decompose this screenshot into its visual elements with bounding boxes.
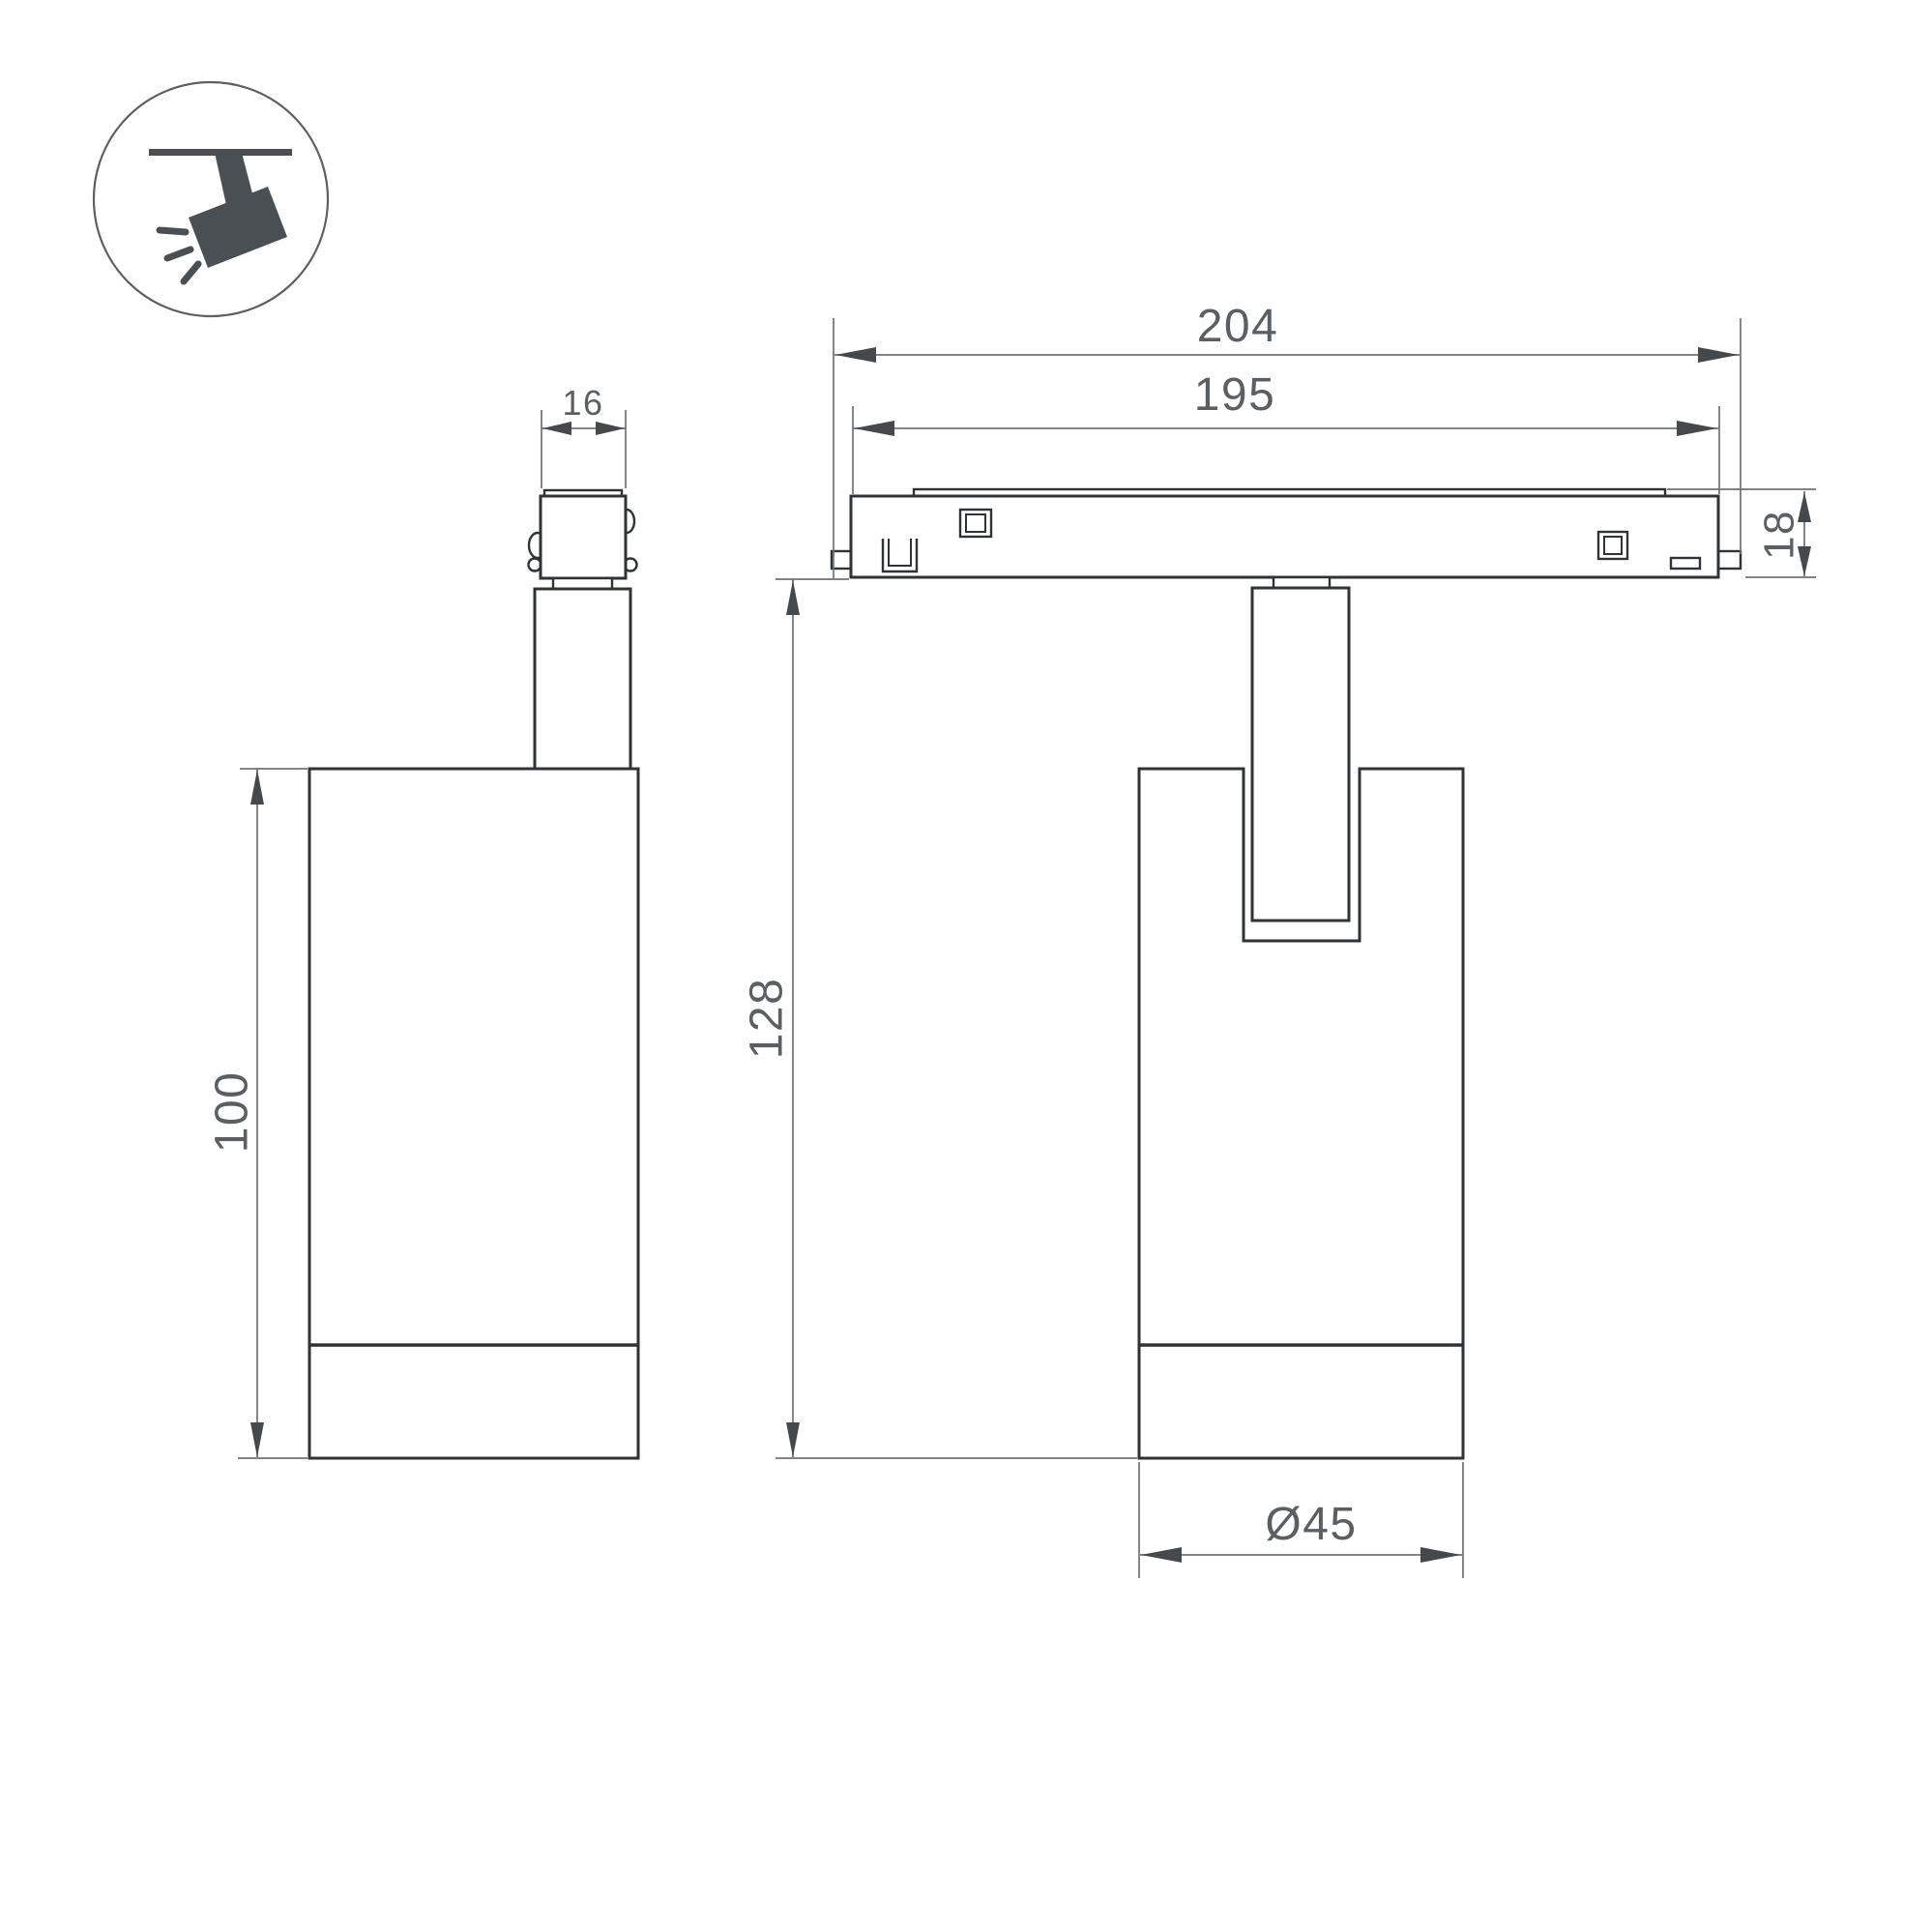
dim-housing-length: 195 xyxy=(853,369,1719,494)
arrowhead xyxy=(786,580,800,615)
arrowhead xyxy=(1141,1547,1182,1563)
dim-label-204: 204 xyxy=(1197,301,1279,352)
track-adapter xyxy=(541,496,626,578)
arrowhead xyxy=(542,422,571,435)
dim-body-height: 100 xyxy=(207,769,307,1458)
dim-drop-height: 128 xyxy=(742,579,1137,1458)
front-view: 204 195 18 128 xyxy=(742,301,1816,1578)
icon-circle xyxy=(94,82,328,316)
arrowhead xyxy=(1677,421,1717,436)
arrowhead xyxy=(1698,347,1739,363)
drawing-canvas: 16 100 xyxy=(0,0,1932,1932)
arrowhead xyxy=(835,347,876,363)
dim-body-diameter: Ø45 xyxy=(1139,1462,1463,1578)
adapter-collar xyxy=(553,578,612,589)
dim-label-18: 18 xyxy=(1756,510,1803,560)
technical-drawing: 16 100 xyxy=(0,0,1932,1932)
arrowhead xyxy=(250,1422,264,1457)
icon-light-ray xyxy=(160,230,186,232)
pivot-stem xyxy=(535,589,630,769)
pivot-stem xyxy=(1252,588,1349,921)
arrowhead xyxy=(854,421,894,436)
arrowhead xyxy=(596,422,625,435)
dim-label-100: 100 xyxy=(207,1071,258,1154)
stem-connector-nub xyxy=(1273,577,1330,588)
icon-spot-head xyxy=(189,187,287,268)
track-end-connector-right xyxy=(1718,551,1741,569)
arrowhead xyxy=(1420,1547,1461,1563)
dim-label-195: 195 xyxy=(1194,369,1276,421)
arrowhead xyxy=(786,1422,800,1457)
icon-light-ray xyxy=(184,264,198,281)
dim-label-d45: Ø45 xyxy=(1265,1499,1357,1550)
icon-light-ray xyxy=(167,249,190,258)
dim-label-128: 128 xyxy=(742,978,793,1060)
track-light-icon xyxy=(94,82,328,316)
dim-label-16: 16 xyxy=(562,383,603,423)
lamp-body xyxy=(309,769,638,1458)
dim-adapter-width: 16 xyxy=(542,383,626,488)
arrowhead xyxy=(250,770,264,805)
side-view: 16 100 xyxy=(207,383,638,1458)
